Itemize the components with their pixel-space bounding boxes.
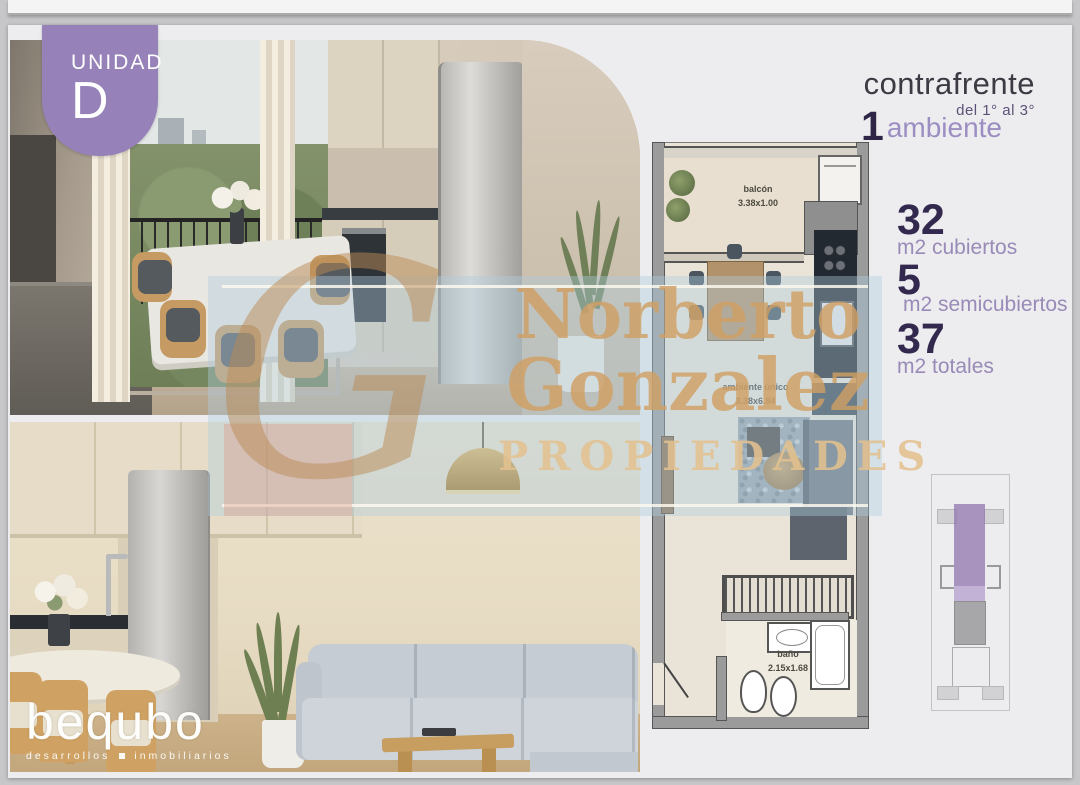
tagline-right: inmobiliarios xyxy=(134,750,231,762)
entry-door-leaf xyxy=(663,662,689,698)
keyplan-bottom-band xyxy=(982,686,1004,700)
bathroom-name: baño xyxy=(748,648,828,662)
plan-sofa xyxy=(803,420,853,515)
plan-tv-unit xyxy=(662,437,673,513)
plant-pot xyxy=(558,336,604,392)
plan-chair xyxy=(689,305,704,320)
keyplan-lower-unit xyxy=(952,647,990,687)
plan-chair xyxy=(727,244,742,259)
flower-vase xyxy=(48,614,70,646)
tagline-square-icon xyxy=(119,753,125,759)
kitchen-sink xyxy=(820,301,854,347)
plan-coffee-table xyxy=(763,452,805,490)
dining-chair xyxy=(215,325,261,383)
balcony-name: balcón xyxy=(693,183,823,197)
sofa-chaise xyxy=(530,752,638,772)
tv-panel xyxy=(10,135,56,303)
developer-tagline: desarrollos inmobiliarios xyxy=(26,750,232,762)
balcony-dims: 3.38x1.00 xyxy=(693,197,823,211)
dining-chair xyxy=(278,320,324,378)
bathroom-wall xyxy=(722,613,848,620)
sofa-backrest xyxy=(308,644,638,702)
dining-chair xyxy=(132,252,172,302)
semicovered-m2-label: m2 semicubiertos xyxy=(897,294,1068,315)
plan-chair xyxy=(689,271,704,286)
main-room-dims: 3.38x6.84 xyxy=(683,395,828,409)
fridge xyxy=(438,62,525,384)
dining-chair xyxy=(160,300,206,358)
balcony-label: balcón 3.38x1.00 xyxy=(693,183,823,210)
unit-badge-letter: D xyxy=(71,71,109,131)
building-key-plan xyxy=(931,474,1010,711)
wall-right xyxy=(857,143,868,728)
coffee-table-leg xyxy=(482,748,496,772)
developer-name: bequbo xyxy=(26,697,232,747)
plan-plant xyxy=(666,198,690,222)
bidet xyxy=(770,676,797,717)
keyplan-highlighted-unit xyxy=(954,504,985,586)
keyplan-bottom-band xyxy=(937,686,959,700)
lamp-cord xyxy=(482,422,484,450)
ac-unit xyxy=(818,155,862,205)
cooktop xyxy=(821,243,847,273)
rooms-label: ambiente xyxy=(887,111,1002,145)
tagline-left: desarrollos xyxy=(26,750,110,762)
keyplan-side-room xyxy=(987,565,1001,589)
wall-left xyxy=(653,143,664,728)
sofa-seat xyxy=(302,698,638,760)
floor-plan: balcón 3.38x1.00 ambiente único 3.38x6.8… xyxy=(653,143,868,728)
plan-sofa-section xyxy=(790,507,847,560)
keyplan-balcony-band xyxy=(984,509,1004,524)
countertop xyxy=(322,208,448,220)
flower-bouquet xyxy=(208,178,266,214)
flower-bouquet xyxy=(26,572,90,616)
book xyxy=(422,728,456,736)
wall-bottom xyxy=(653,717,868,728)
total-m2-label: m2 totales xyxy=(897,356,994,377)
keyplan-unit-semicovered xyxy=(954,586,985,601)
bathroom-label: baño 2.15x1.68 xyxy=(748,648,828,675)
keyplan-core xyxy=(954,601,986,645)
plan-chair xyxy=(766,305,781,320)
upper-cabinets xyxy=(328,40,440,153)
dining-chair xyxy=(310,255,350,305)
faucet xyxy=(106,554,111,616)
plan-dining-table xyxy=(708,262,763,340)
previous-slide-edge xyxy=(8,0,1072,15)
rooms-number: 1 xyxy=(861,106,884,147)
plan-chair xyxy=(766,271,781,286)
covered-m2-label: m2 cubiertos xyxy=(897,237,1017,258)
entry-door-opening xyxy=(653,663,664,705)
keyplan-side-room xyxy=(940,565,954,589)
page: UNIDAD D contrafrente del 1° al 3° 1 amb… xyxy=(0,0,1080,785)
plan-plant xyxy=(669,170,695,196)
main-room-name: ambiente único xyxy=(683,381,828,395)
backsplash xyxy=(328,148,440,208)
developer-logo: bequbo desarrollos inmobiliarios xyxy=(26,697,232,762)
unit-badge: UNIDAD D xyxy=(42,25,158,156)
main-room-label: ambiente único 3.38x6.84 xyxy=(683,381,828,408)
orientation-title: contrafrente xyxy=(864,66,1035,102)
bathroom-dims: 2.15x1.68 xyxy=(748,662,828,676)
rooms-count: 1 ambiente xyxy=(861,106,1002,147)
bathroom-wall-left xyxy=(717,657,726,720)
toilet xyxy=(740,670,767,713)
